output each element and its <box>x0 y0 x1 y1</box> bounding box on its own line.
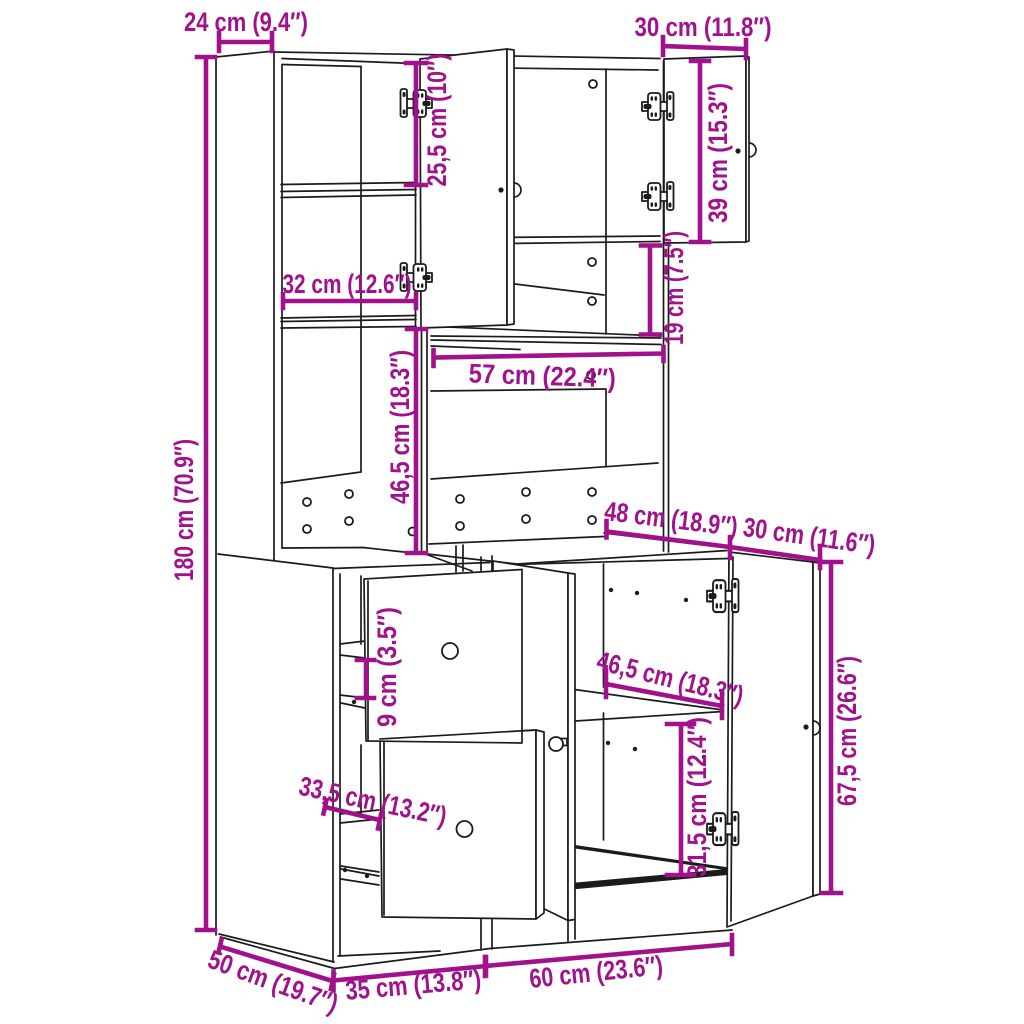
svg-text:24 cm (9.4″): 24 cm (9.4″) <box>184 7 308 37</box>
svg-text:180 cm (70.9″): 180 cm (70.9″) <box>169 439 199 581</box>
svg-text:57 cm (22.4″): 57 cm (22.4″) <box>468 358 616 393</box>
svg-text:67,5 cm (26.6″): 67,5 cm (26.6″) <box>832 656 862 806</box>
svg-text:32 cm (12.6″): 32 cm (12.6″) <box>283 269 412 299</box>
svg-text:46,5 cm (18.3″): 46,5 cm (18.3″) <box>385 350 415 504</box>
svg-text:31,5 cm (12.4″): 31,5 cm (12.4″) <box>682 717 712 877</box>
svg-text:19 cm (7.5″): 19 cm (7.5″) <box>659 231 689 345</box>
svg-text:25,5 cm (10″): 25,5 cm (10″) <box>422 54 452 187</box>
svg-text:39 cm (15.3″): 39 cm (15.3″) <box>703 83 733 223</box>
svg-text:9 cm (3.5″): 9 cm (3.5″) <box>372 607 402 727</box>
svg-text:30 cm (11.8″): 30 cm (11.8″) <box>635 12 772 42</box>
